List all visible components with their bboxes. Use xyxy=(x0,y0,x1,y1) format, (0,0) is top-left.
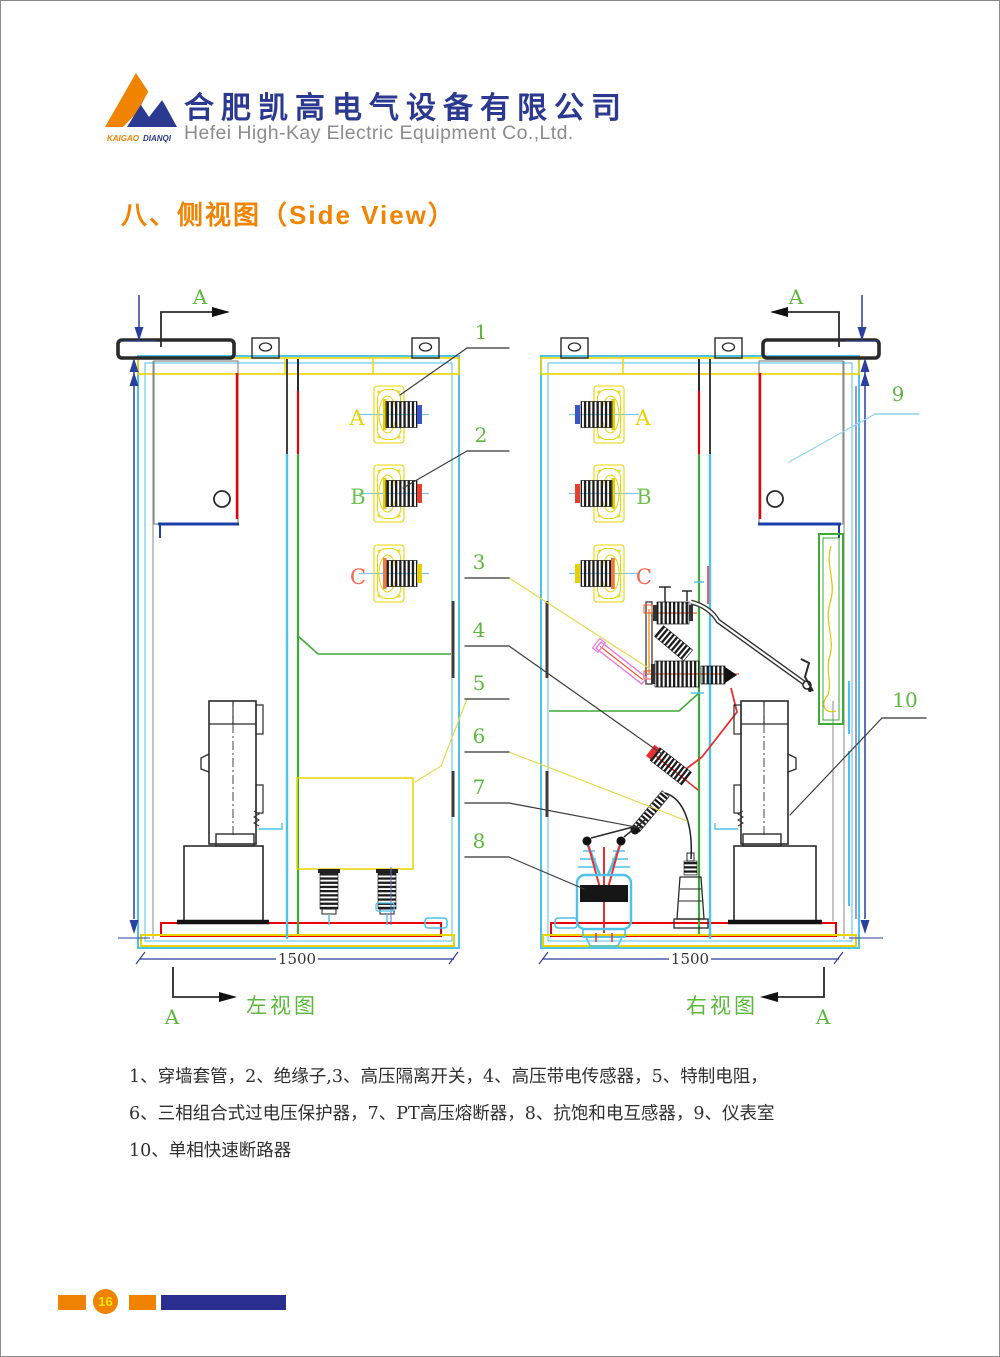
left-view-label: 左视图 xyxy=(246,994,318,1018)
footer-orange-bar-2 xyxy=(129,1295,156,1310)
instrument-compartment-right xyxy=(758,361,843,538)
callout-2: 2 xyxy=(475,423,488,447)
callout-6: 6 xyxy=(473,724,486,748)
wall-bushings-right: A B C xyxy=(569,386,652,602)
page-footer: 16 xyxy=(1,1289,1000,1319)
resistor-box xyxy=(297,778,413,869)
footer-orange-bar-1 xyxy=(58,1295,86,1310)
section-letter-top-left: A xyxy=(192,285,208,309)
right-view-label: 右视图 xyxy=(686,994,758,1018)
callout-9: 9 xyxy=(892,382,905,406)
page-number-badge: 16 xyxy=(93,1289,118,1314)
dim-width-left: 1500 xyxy=(278,950,316,968)
circuit-breaker-right xyxy=(715,701,822,922)
surge-protector xyxy=(645,688,737,790)
callout-10: 10 xyxy=(892,688,917,712)
callout-8: 8 xyxy=(473,829,486,853)
cabinet-frame-left xyxy=(118,338,459,948)
legend-line-2: 6、三相组合式过电压保护器，7、PT高压熔断器，8、抗饱和电互感器，9、仪表室 xyxy=(129,1096,889,1133)
section-letter-bottom-right: A xyxy=(815,1005,831,1029)
door-handle xyxy=(214,491,230,507)
voltage-transformer xyxy=(577,819,646,946)
support-insulators xyxy=(318,867,398,925)
phase-label-c-left: C xyxy=(350,565,366,589)
dim-width-right: 1500 xyxy=(671,950,709,968)
phase-label-b-right: B xyxy=(636,485,651,509)
mechanism-duct xyxy=(801,534,843,724)
disconnect-switch xyxy=(592,566,812,692)
phase-label-a-left: A xyxy=(348,406,365,430)
partition-left xyxy=(287,359,451,939)
instrument-compartment-left xyxy=(154,361,239,538)
wall-bushings-left: A B C xyxy=(348,386,429,602)
left-cabinet-view: A B C xyxy=(118,285,459,1029)
callout-4: 4 xyxy=(473,618,486,642)
legend-line-3: 10、单相快速断路器 xyxy=(129,1133,889,1170)
footer-navy-bar xyxy=(161,1295,286,1310)
callout-1: 1 xyxy=(475,320,488,344)
section-letter-top-right: A xyxy=(788,285,804,309)
phase-label-a-right: A xyxy=(634,406,651,430)
right-cabinet-view: A B C xyxy=(539,285,883,1029)
combined-surge-arrester xyxy=(674,853,708,928)
legend-line-1: 1、穿墙套管，2、绝缘子,3、高压隔离开关，4、高压带电传感器，5、特制电阻， xyxy=(129,1059,889,1096)
callout-3: 3 xyxy=(473,550,486,574)
section-letter-bottom-left: A xyxy=(164,1005,180,1029)
callout-7: 7 xyxy=(473,775,486,799)
callout-5: 5 xyxy=(473,671,486,695)
manual-page: KAIGAO DIANQI 合肥凯高电气设备有限公司 Hefei High-Ka… xyxy=(0,0,1000,1357)
phase-label-b-left: B xyxy=(350,485,365,509)
door-handle xyxy=(767,491,783,507)
live-sensor-cone xyxy=(725,667,737,683)
breaker-mechanism-left xyxy=(177,701,282,922)
component-legend: 1、穿墙套管，2、绝缘子,3、高压隔离开关，4、高压带电传感器，5、特制电阻， … xyxy=(129,1059,889,1170)
phase-label-c-right: C xyxy=(636,565,652,589)
